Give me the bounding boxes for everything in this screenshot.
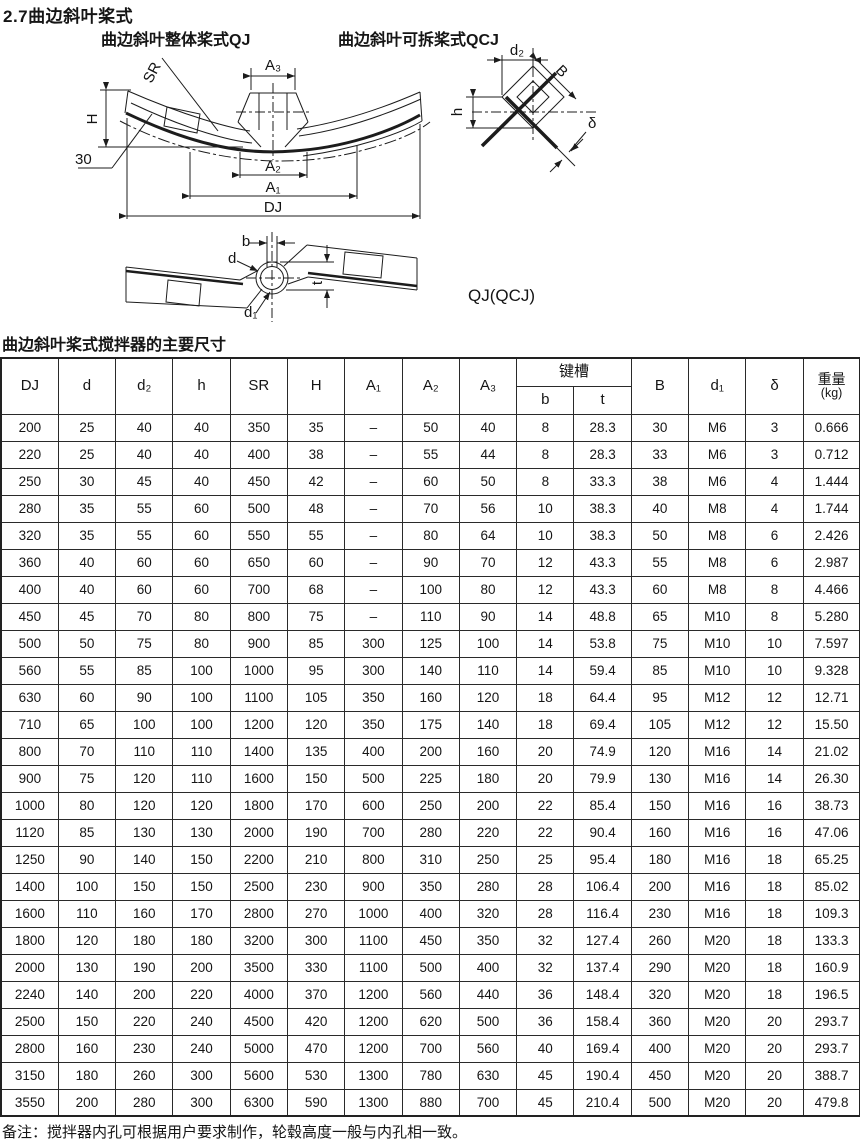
table-cell: 8 — [746, 603, 803, 630]
table-cell: 400 — [459, 954, 516, 981]
table-cell: 220 — [173, 981, 230, 1008]
table-cell: 33.3 — [574, 468, 631, 495]
table-cell: 360 — [631, 1008, 688, 1035]
table-cell: 110 — [173, 738, 230, 765]
table-cell: 125 — [402, 630, 459, 657]
table-cell: 700 — [459, 1089, 516, 1116]
table-cell: 590 — [287, 1089, 344, 1116]
table-cell: 64 — [459, 522, 516, 549]
table-cell: 150 — [631, 792, 688, 819]
table-cell: 18 — [746, 873, 803, 900]
table-cell: 26.30 — [803, 765, 860, 792]
table-cell: 180 — [116, 927, 173, 954]
table-cell: 6 — [746, 549, 803, 576]
table-row: 8007011011014001354002001602074.9120M161… — [1, 738, 860, 765]
table-cell: 250 — [402, 792, 459, 819]
table-cell: 80 — [459, 576, 516, 603]
table-cell: 130 — [173, 819, 230, 846]
table-cell: 12.71 — [803, 684, 860, 711]
table-cell: 180 — [173, 927, 230, 954]
table-cell: 0.666 — [803, 414, 860, 441]
table-cell: 7.597 — [803, 630, 860, 657]
table-cell: M16 — [689, 738, 746, 765]
table-cell: 2500 — [230, 873, 287, 900]
table-row: 28001602302405000470120070056040169.4400… — [1, 1035, 860, 1062]
table-cell: 60 — [173, 576, 230, 603]
table-cell: 85 — [116, 657, 173, 684]
technical-drawing: H 30 SR A₃ A₂ A₁ DJ d₂ B h δ b d t d₁ QJ… — [0, 0, 860, 335]
table-cell: 1120 — [1, 819, 58, 846]
table-cell: 1000 — [345, 900, 402, 927]
table-cell: 6300 — [230, 1089, 287, 1116]
dim-label-sr: SR — [140, 59, 165, 86]
table-cell: 200 — [402, 738, 459, 765]
table-cell: 40 — [58, 576, 115, 603]
table-cell: 14 — [746, 738, 803, 765]
table-cell: 4 — [746, 468, 803, 495]
table-cell: 220 — [459, 819, 516, 846]
table-cell: – — [345, 441, 402, 468]
table-cell: 85.02 — [803, 873, 860, 900]
table-cell: 59.4 — [574, 657, 631, 684]
table-cell: 35 — [58, 495, 115, 522]
table-cell: 25 — [58, 414, 115, 441]
table-cell: 200 — [631, 873, 688, 900]
table-cell: 800 — [1, 738, 58, 765]
table-cell: 120 — [631, 738, 688, 765]
table-cell: 44 — [459, 441, 516, 468]
table-cell: 48.8 — [574, 603, 631, 630]
table-cell: 100 — [402, 576, 459, 603]
table-cell: 8 — [517, 468, 574, 495]
table-cell: 130 — [58, 954, 115, 981]
table-cell: 310 — [402, 846, 459, 873]
table-cell: 43.3 — [574, 549, 631, 576]
table-cell: 1800 — [230, 792, 287, 819]
table-cell: 500 — [459, 1008, 516, 1035]
dim-label-a3: A₃ — [265, 57, 281, 74]
table-cell: 90 — [402, 549, 459, 576]
table-cell: – — [345, 468, 402, 495]
table-cell: 33 — [631, 441, 688, 468]
table-row: 35502002803006300590130088070045210.4500… — [1, 1089, 860, 1116]
table-cell: – — [345, 495, 402, 522]
dim-label-dj: DJ — [264, 199, 282, 216]
dim-label-delta: δ — [588, 115, 596, 132]
table-cell: 230 — [631, 900, 688, 927]
table-cell: 55 — [116, 522, 173, 549]
table-cell: 600 — [345, 792, 402, 819]
table-cell: 85 — [58, 819, 115, 846]
table-cell: 40 — [173, 468, 230, 495]
table-cell: 240 — [173, 1008, 230, 1035]
table-cell: 5.280 — [803, 603, 860, 630]
table-cell: 150 — [58, 1008, 115, 1035]
table-cell: M6 — [689, 414, 746, 441]
table-cell: 50 — [459, 468, 516, 495]
table-cell: 2800 — [1, 1035, 58, 1062]
table-cell: 22 — [517, 792, 574, 819]
table-cell: M20 — [689, 954, 746, 981]
dim-label-t: t — [309, 280, 326, 285]
table-cell: – — [345, 549, 402, 576]
table-cell: 18 — [746, 954, 803, 981]
table-row: 25001502202404500420120062050036158.4360… — [1, 1008, 860, 1035]
table-cell: 4.466 — [803, 576, 860, 603]
table-cell: 2000 — [230, 819, 287, 846]
weight-label: 重量 — [804, 372, 860, 387]
table-cell: 75 — [58, 765, 115, 792]
table-cell: 160 — [459, 738, 516, 765]
table-cell: 5000 — [230, 1035, 287, 1062]
table-cell: 220 — [1, 441, 58, 468]
table-cell: 20 — [517, 765, 574, 792]
table-cell: 28.3 — [574, 414, 631, 441]
table-cell: 38.73 — [803, 792, 860, 819]
table-cell: 479.8 — [803, 1089, 860, 1116]
table-cell: 75 — [287, 603, 344, 630]
table-cell: 900 — [345, 873, 402, 900]
table-cell: 85.4 — [574, 792, 631, 819]
dim-label-d2: d₂ — [510, 42, 524, 59]
section-view-drawing — [466, 48, 598, 172]
table-cell: 160 — [58, 1035, 115, 1062]
table-cell: 120 — [116, 765, 173, 792]
table-cell: 50 — [58, 630, 115, 657]
table-cell: 85 — [287, 630, 344, 657]
table-cell: M12 — [689, 684, 746, 711]
table-cell: M8 — [689, 522, 746, 549]
table-cell: 150 — [173, 873, 230, 900]
table-cell: 148.4 — [574, 981, 631, 1008]
table-cell: 330 — [287, 954, 344, 981]
table-cell: – — [345, 522, 402, 549]
table-cell: 200 — [459, 792, 516, 819]
table-cell: 4000 — [230, 981, 287, 1008]
table-cell: 48 — [287, 495, 344, 522]
table-cell: 135 — [287, 738, 344, 765]
table-cell: 90 — [459, 603, 516, 630]
table-cell: 130 — [631, 765, 688, 792]
table-cell: 64.4 — [574, 684, 631, 711]
table-cell: 70 — [459, 549, 516, 576]
table-cell: 2.987 — [803, 549, 860, 576]
table-cell: 300 — [345, 630, 402, 657]
table-cell: 79.9 — [574, 765, 631, 792]
table-cell: 500 — [1, 630, 58, 657]
table-cell: 1200 — [345, 1008, 402, 1035]
table-cell: 38 — [631, 468, 688, 495]
table-cell: 450 — [402, 927, 459, 954]
table-cell: 90.4 — [574, 819, 631, 846]
table-cell: 630 — [459, 1062, 516, 1089]
dim-label-h-lower: h — [449, 108, 466, 116]
table-row: 9007512011016001505002251802079.9130M161… — [1, 765, 860, 792]
table-cell: 50 — [631, 522, 688, 549]
table-cell: 210.4 — [574, 1089, 631, 1116]
table-cell: 280 — [402, 819, 459, 846]
table-cell: 240 — [173, 1035, 230, 1062]
table-cell: 60 — [173, 549, 230, 576]
table-cell: 60 — [116, 576, 173, 603]
table-cell: 4500 — [230, 1008, 287, 1035]
weight-unit-label: (kg) — [804, 387, 860, 400]
table-cell: 10 — [746, 657, 803, 684]
table-cell: 60 — [173, 522, 230, 549]
table-row: 56055851001000953001401101459.485M10109.… — [1, 657, 860, 684]
table-cell: 2800 — [230, 900, 287, 927]
table-cell: 1400 — [230, 738, 287, 765]
table-row: 28035556050048–70561038.340M841.744 — [1, 495, 860, 522]
table-cell: 20 — [746, 1062, 803, 1089]
table-cell: 60 — [631, 576, 688, 603]
table-cell: 47.06 — [803, 819, 860, 846]
table-cell: 420 — [287, 1008, 344, 1035]
table-cell: 40 — [173, 414, 230, 441]
table-body: 20025404035035–5040828.330M630.666220254… — [1, 414, 860, 1116]
table-cell: 3 — [746, 441, 803, 468]
table-cell: 1300 — [345, 1062, 402, 1089]
table-cell: 560 — [459, 1035, 516, 1062]
model-designation-label: QJ(QCJ) — [468, 286, 535, 305]
table-cell: 80 — [402, 522, 459, 549]
table-cell: 780 — [402, 1062, 459, 1089]
table-cell: 700 — [345, 819, 402, 846]
table-row: 11208513013020001907002802202290.4160M16… — [1, 819, 860, 846]
table-cell: M16 — [689, 873, 746, 900]
table-cell: 80 — [173, 603, 230, 630]
dimension-table: DJ d d₂ h SR H A₁ A₂ A₃ 键槽 B d₁ δ 重量 (kg… — [0, 357, 860, 1117]
table-cell: 900 — [230, 630, 287, 657]
table-cell: 350 — [230, 414, 287, 441]
table-cell: 3200 — [230, 927, 287, 954]
table-cell: 150 — [116, 873, 173, 900]
table-cell: 650 — [230, 549, 287, 576]
table-cell: 120 — [58, 927, 115, 954]
table-cell: 50 — [402, 414, 459, 441]
table-row: 22025404040038–5544828.333M630.712 — [1, 441, 860, 468]
table-cell: M20 — [689, 1035, 746, 1062]
table-cell: 250 — [459, 846, 516, 873]
table-cell: 1200 — [345, 1035, 402, 1062]
table-cell: 220 — [116, 1008, 173, 1035]
table-cell: 10 — [517, 522, 574, 549]
table-cell: 25 — [58, 441, 115, 468]
table-cell: 400 — [1, 576, 58, 603]
table-cell: 140 — [116, 846, 173, 873]
table-cell: 110 — [402, 603, 459, 630]
table-cell: 270 — [287, 900, 344, 927]
table-cell: 40 — [631, 495, 688, 522]
table-cell: 300 — [173, 1089, 230, 1116]
table-cell: 530 — [287, 1062, 344, 1089]
table-cell: 40 — [459, 414, 516, 441]
table-cell: M16 — [689, 792, 746, 819]
table-row: 40040606070068–100801243.360M884.466 — [1, 576, 860, 603]
table-caption: 曲边斜叶桨式搅拌器的主要尺寸 — [2, 331, 226, 355]
table-cell: 20 — [746, 1089, 803, 1116]
table-cell: 10 — [746, 630, 803, 657]
table-cell: 38.3 — [574, 522, 631, 549]
table-cell: 100 — [116, 711, 173, 738]
table-cell: 55 — [287, 522, 344, 549]
table-cell: 80 — [173, 630, 230, 657]
table-cell: 450 — [230, 468, 287, 495]
table-cell: 710 — [1, 711, 58, 738]
table-cell: 6 — [746, 522, 803, 549]
table-cell: 290 — [631, 954, 688, 981]
table-cell: 180 — [459, 765, 516, 792]
table-cell: 40 — [116, 414, 173, 441]
table-cell: 65 — [631, 603, 688, 630]
table-cell: 60 — [58, 684, 115, 711]
table-cell: 75 — [116, 630, 173, 657]
table-cell: 280 — [116, 1089, 173, 1116]
table-cell: 1000 — [1, 792, 58, 819]
table-cell: 30 — [58, 468, 115, 495]
table-cell: 450 — [1, 603, 58, 630]
table-cell: 14 — [746, 765, 803, 792]
table-row: 45045708080075–110901448.865M1085.280 — [1, 603, 860, 630]
table-cell: 35 — [287, 414, 344, 441]
table-cell: 800 — [230, 603, 287, 630]
table-cell: 75 — [631, 630, 688, 657]
table-cell: 250 — [1, 468, 58, 495]
table-cell: 160 — [402, 684, 459, 711]
table-cell: 55 — [116, 495, 173, 522]
table-cell: 95.4 — [574, 846, 631, 873]
col-header-dj: DJ — [1, 358, 58, 414]
table-cell: 370 — [287, 981, 344, 1008]
table-row: 18001201801803200300110045035032127.4260… — [1, 927, 860, 954]
dim-label-d1: d₁ — [244, 304, 257, 321]
table-cell: 630 — [1, 684, 58, 711]
table-cell: 320 — [459, 900, 516, 927]
table-cell: 260 — [631, 927, 688, 954]
table-cell: 18 — [746, 927, 803, 954]
table-cell: 175 — [402, 711, 459, 738]
table-cell: 160 — [631, 819, 688, 846]
dim-label-a2: A₂ — [265, 158, 281, 175]
table-cell: 40 — [173, 441, 230, 468]
table-cell: 2240 — [1, 981, 58, 1008]
table-cell: 45 — [517, 1089, 574, 1116]
table-cell: 280 — [459, 873, 516, 900]
table-cell: 500 — [345, 765, 402, 792]
table-cell: 55 — [631, 549, 688, 576]
table-cell: 45 — [517, 1062, 574, 1089]
table-cell: 20 — [517, 738, 574, 765]
footer-note: 备注：搅拌器内孔可根据用户要求制作，轮毂高度一般与内孔相一致。 — [2, 1121, 467, 1142]
table-cell: 560 — [402, 981, 459, 1008]
table-cell: 300 — [345, 657, 402, 684]
table-cell: M20 — [689, 1089, 746, 1116]
col-header-a2: A₂ — [402, 358, 459, 414]
table-cell: 196.5 — [803, 981, 860, 1008]
table-cell: 100 — [173, 684, 230, 711]
table-cell: 18 — [746, 846, 803, 873]
table-cell: 100 — [58, 873, 115, 900]
table-cell: 300 — [173, 1062, 230, 1089]
table-row: 20001301902003500330110050040032137.4290… — [1, 954, 860, 981]
table-cell: 12 — [746, 684, 803, 711]
table-row: 630609010011001053501601201864.495M12121… — [1, 684, 860, 711]
table-cell: 180 — [58, 1062, 115, 1089]
table-row: 31501802603005600530130078063045190.4450… — [1, 1062, 860, 1089]
table-cell: 4 — [746, 495, 803, 522]
plan-view-drawing — [126, 232, 417, 322]
table-cell: 95 — [631, 684, 688, 711]
table-cell: 110 — [116, 738, 173, 765]
table-cell: 3150 — [1, 1062, 58, 1089]
table-cell: 210 — [287, 846, 344, 873]
table-cell: 350 — [459, 927, 516, 954]
table-cell: 53.8 — [574, 630, 631, 657]
table-row: 12509014015022002108003102502595.4180M16… — [1, 846, 860, 873]
table-cell: 32 — [517, 954, 574, 981]
table-cell: 90 — [116, 684, 173, 711]
table-cell: 14 — [517, 603, 574, 630]
table-cell: M8 — [689, 576, 746, 603]
table-cell: 133.3 — [803, 927, 860, 954]
table-cell: 56 — [459, 495, 516, 522]
table-cell: 200 — [116, 981, 173, 1008]
table-row: 20025404035035–5040828.330M630.666 — [1, 414, 860, 441]
table-cell: 1400 — [1, 873, 58, 900]
table-cell: 1250 — [1, 846, 58, 873]
table-cell: 18 — [517, 684, 574, 711]
table-cell: 620 — [402, 1008, 459, 1035]
table-row: 36040606065060–90701243.355M862.987 — [1, 549, 860, 576]
table-cell: 5600 — [230, 1062, 287, 1089]
table-cell: 116.4 — [574, 900, 631, 927]
table-row: 25030454045042–6050833.338M641.444 — [1, 468, 860, 495]
table-cell: M20 — [689, 981, 746, 1008]
table-cell: 150 — [173, 846, 230, 873]
table-cell: 43.3 — [574, 576, 631, 603]
table-cell: 260 — [116, 1062, 173, 1089]
table-cell: 400 — [230, 441, 287, 468]
table-cell: 14 — [517, 630, 574, 657]
table-cell: M16 — [689, 846, 746, 873]
table-cell: 150 — [287, 765, 344, 792]
table-cell: 10 — [517, 495, 574, 522]
table-cell: 190 — [116, 954, 173, 981]
table-row: 22401402002204000370120056044036148.4320… — [1, 981, 860, 1008]
table-cell: M6 — [689, 468, 746, 495]
table-cell: 180 — [631, 846, 688, 873]
table-cell: 550 — [230, 522, 287, 549]
front-view-drawing — [78, 58, 430, 219]
col-header-keyway-b: b — [517, 386, 574, 414]
table-cell: 700 — [402, 1035, 459, 1062]
table-cell: M20 — [689, 1062, 746, 1089]
table-cell: 2000 — [1, 954, 58, 981]
col-header-d: d — [58, 358, 115, 414]
col-header-weight: 重量 (kg) — [803, 358, 860, 414]
table-cell: 32 — [517, 927, 574, 954]
table-cell: 293.7 — [803, 1035, 860, 1062]
table-cell: 110 — [173, 765, 230, 792]
table-cell: 120 — [173, 792, 230, 819]
table-cell: 1100 — [345, 927, 402, 954]
table-cell: 560 — [1, 657, 58, 684]
table-cell: 60 — [287, 549, 344, 576]
table-cell: M16 — [689, 819, 746, 846]
table-cell: 16 — [746, 819, 803, 846]
table-cell: 0.712 — [803, 441, 860, 468]
table-cell: 190.4 — [574, 1062, 631, 1089]
